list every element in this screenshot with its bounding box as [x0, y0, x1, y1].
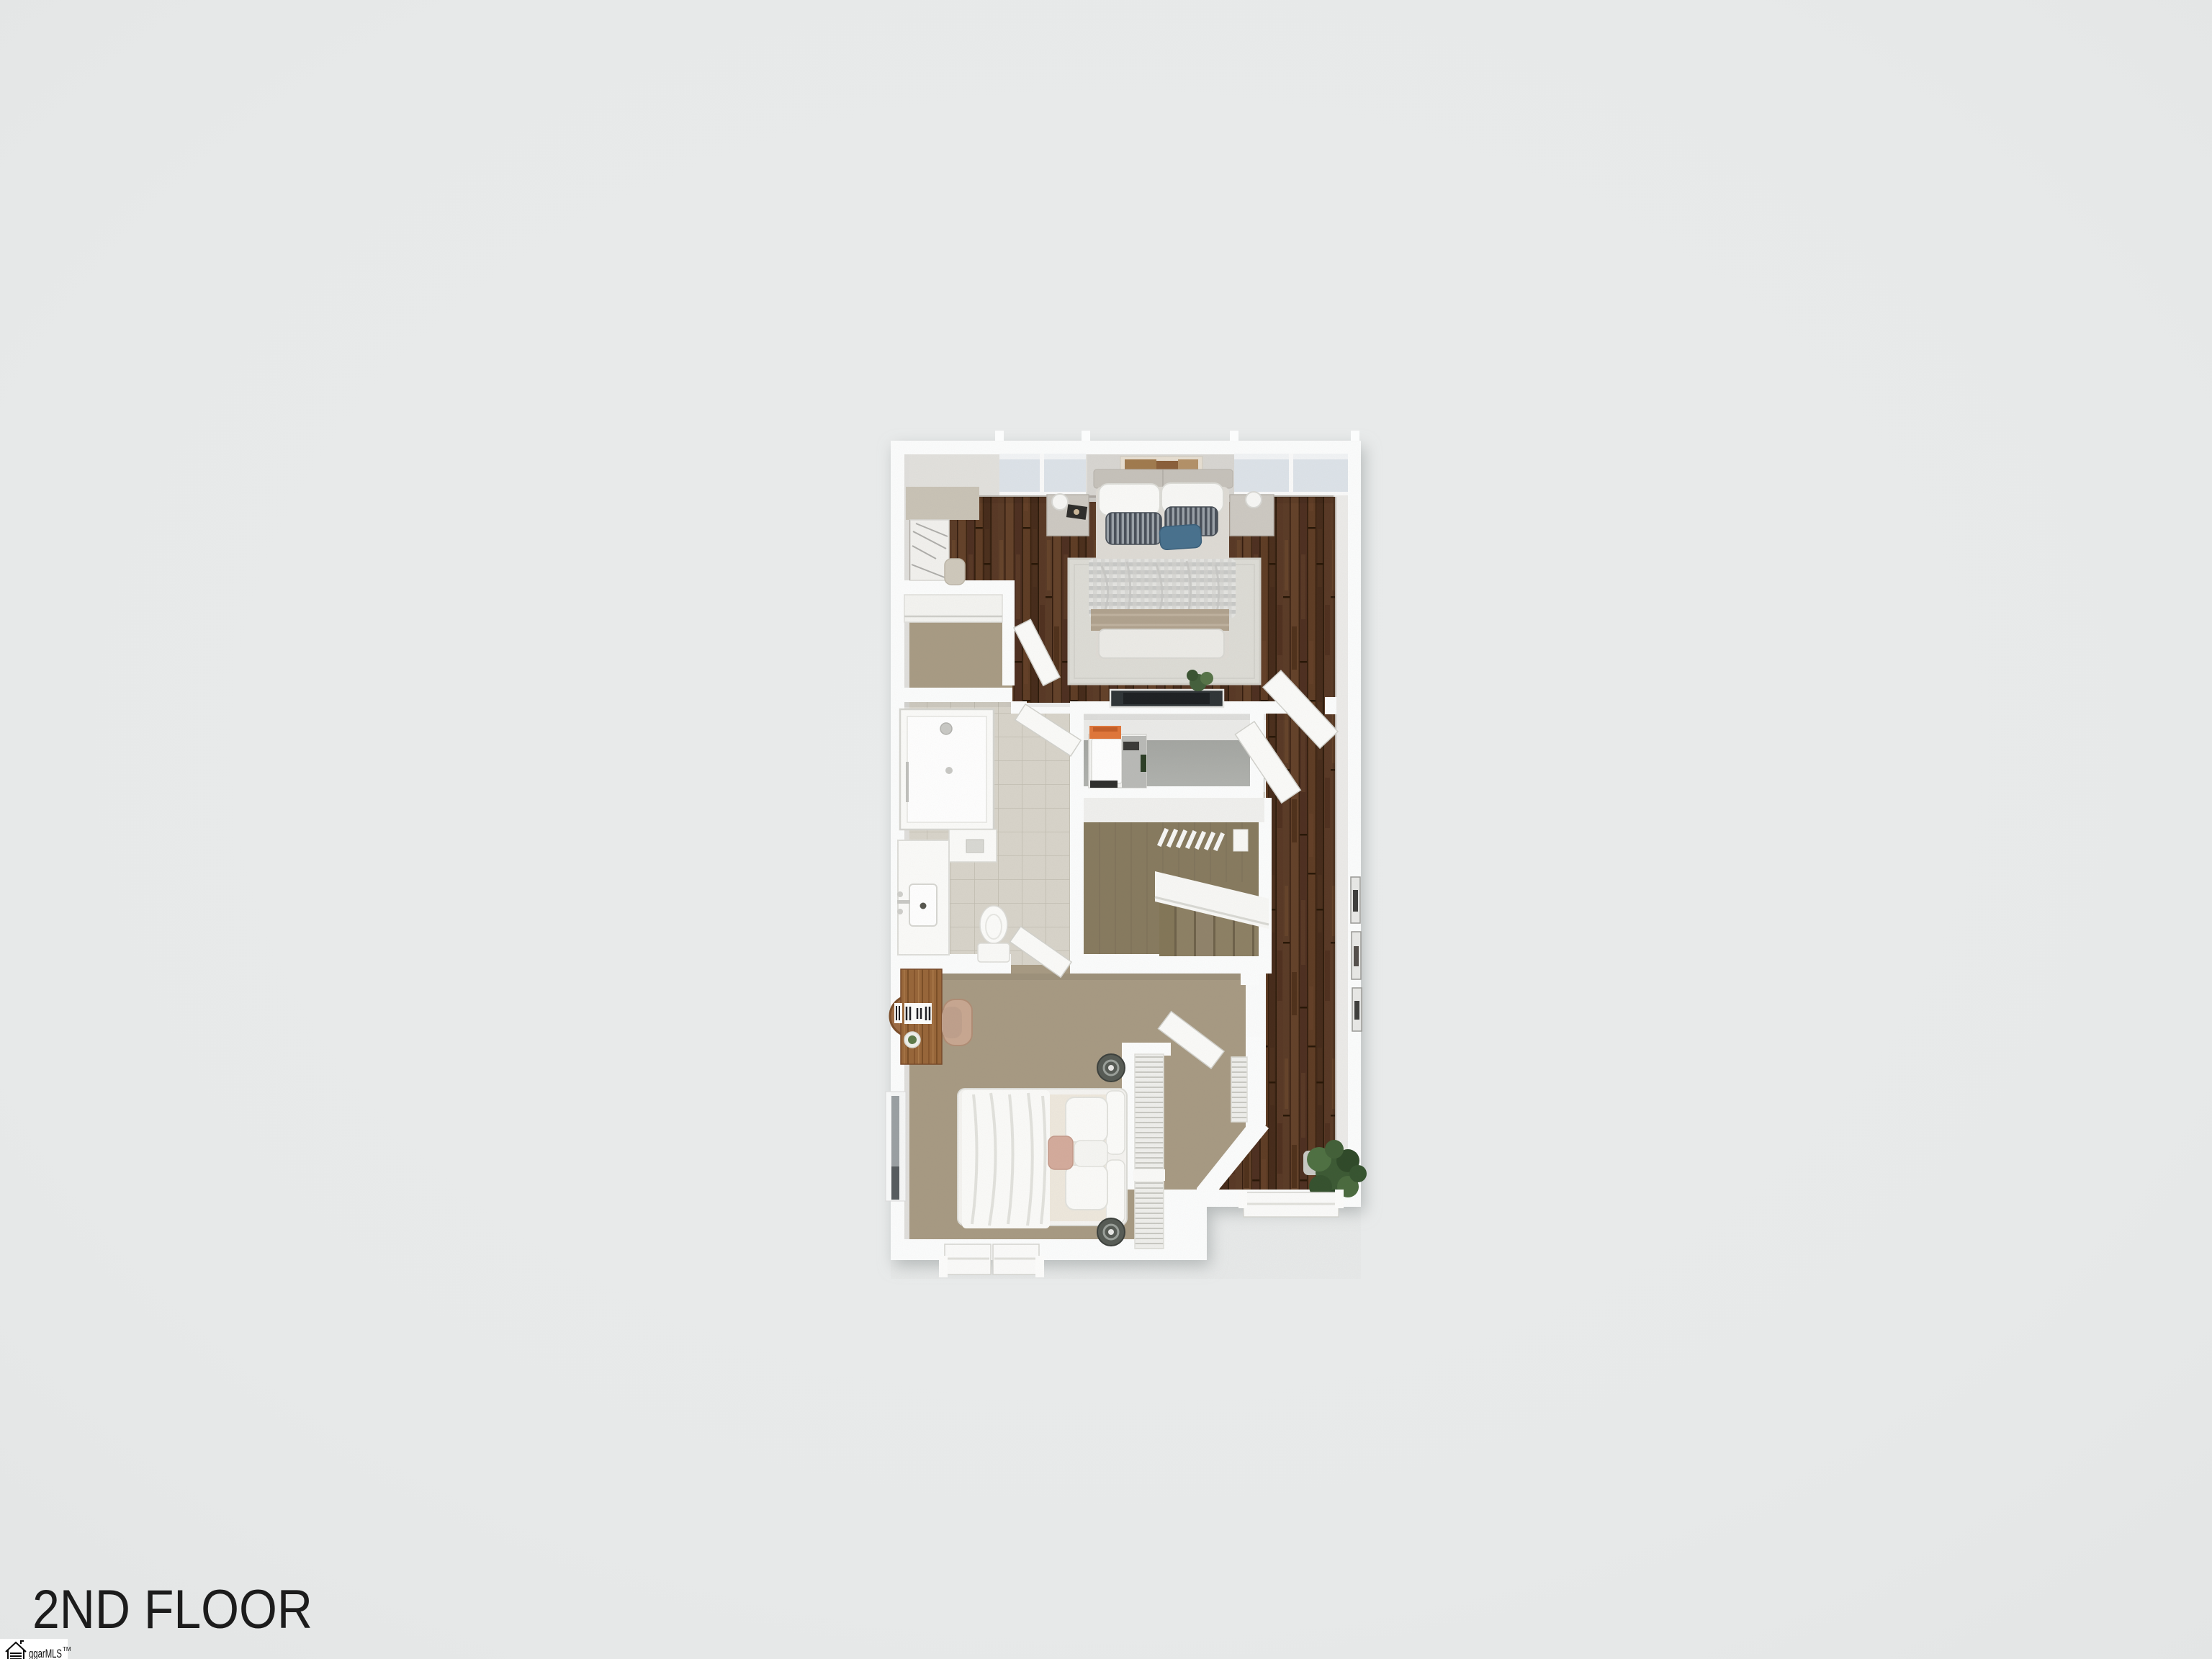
svg-text:2ND FLOOR: 2ND FLOOR	[32, 1579, 313, 1640]
svg-text:TM: TM	[63, 1646, 71, 1653]
svg-text:ggarMLS: ggarMLS	[29, 1647, 62, 1659]
